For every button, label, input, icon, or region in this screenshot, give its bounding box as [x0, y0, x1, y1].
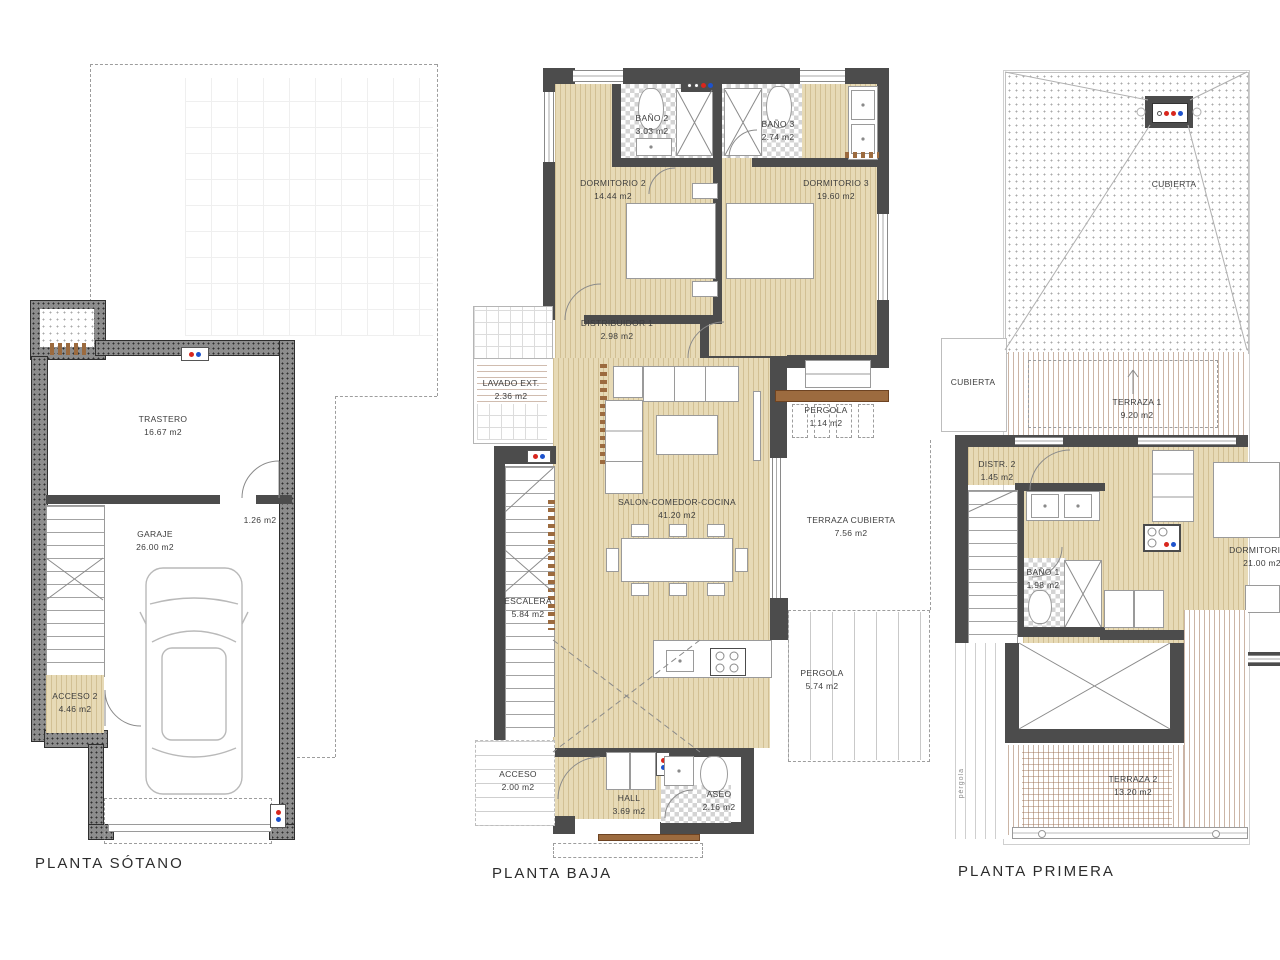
room-label-distr2: DISTR. 21.45 m2	[978, 458, 1015, 484]
room-name: TERRAZA 2	[1109, 773, 1158, 786]
dot	[1157, 111, 1162, 116]
pergola-side-label: pérgola	[958, 768, 965, 798]
room-name: CUBIERTA	[1152, 178, 1197, 191]
room-area: 21.00 m2	[1229, 557, 1280, 570]
room-label-terraza1: TERRAZA 19.20 m2	[1113, 396, 1162, 422]
sink	[1064, 494, 1092, 518]
wall-corridor-bottom	[1100, 630, 1185, 640]
floorplan-sheet: { "titles": { "sotano": "PLANTA SÓTANO",…	[0, 0, 1280, 960]
corridor-closet	[1104, 590, 1164, 628]
pergola-side-deck	[955, 643, 1005, 839]
room-area: 13.20 m2	[1109, 786, 1158, 799]
wall-bano1-top	[1015, 483, 1105, 491]
terraza2-deck-right	[1184, 610, 1248, 835]
room-label-dormitorio1: DORMITORIO 121.00 m2	[1229, 544, 1280, 570]
wall-void-right	[1170, 643, 1184, 743]
hot-water-dot	[1164, 111, 1169, 116]
room-name: DORMITORIO 1	[1229, 544, 1280, 557]
sink	[1031, 494, 1059, 518]
appliance-dots	[1160, 540, 1180, 549]
deck-fastener	[1212, 830, 1220, 838]
wall-void-left	[1005, 643, 1019, 743]
room-area: 1.98 m2	[1027, 579, 1060, 592]
room-name: BAÑO 1	[1027, 566, 1060, 579]
hot-water-dot	[1164, 542, 1169, 547]
roof-cubierta	[1005, 72, 1249, 354]
room-label-terraza2: TERRAZA 213.20 m2	[1109, 773, 1158, 799]
cold-water-dot	[1178, 111, 1183, 116]
p1-stairs	[968, 490, 1018, 660]
void-interior	[1019, 643, 1170, 729]
plan-title-primera: PLANTA PRIMERA	[958, 863, 1115, 880]
room-label-cubierta2: CUBIERTA	[951, 376, 996, 389]
deck-fastener	[1038, 830, 1046, 838]
window-p1-top-2	[1138, 437, 1236, 445]
window-p1-top-1	[1015, 437, 1063, 445]
toilet-bano1	[1028, 590, 1052, 624]
plan-primera: CUBIERTA CUBIERTA TERRAZA 19.20 m2 DISTR…	[0, 0, 1280, 960]
room-area: 9.20 m2	[1113, 409, 1162, 422]
wall-bano1-bottom	[1015, 627, 1105, 637]
skylight	[1152, 103, 1188, 123]
room-name: TERRAZA 1	[1113, 396, 1162, 409]
room-name: DISTR. 2	[978, 458, 1015, 471]
dresser-dorm1	[1245, 585, 1280, 613]
room-label-cubierta: CUBIERTA	[1152, 178, 1197, 191]
room-area: 1.45 m2	[978, 471, 1015, 484]
room-label-bano1: BAÑO 11.98 m2	[1027, 566, 1060, 592]
cold-water-dot	[1171, 542, 1176, 547]
shower-bano1	[1064, 560, 1102, 628]
hot-water-dot	[1171, 111, 1176, 116]
wall-void-bottom	[1005, 729, 1184, 743]
tall-closet	[1152, 450, 1194, 522]
room-name: CUBIERTA	[951, 376, 996, 389]
wall-p1-left	[955, 447, 968, 643]
bed-dorm1	[1213, 462, 1280, 538]
